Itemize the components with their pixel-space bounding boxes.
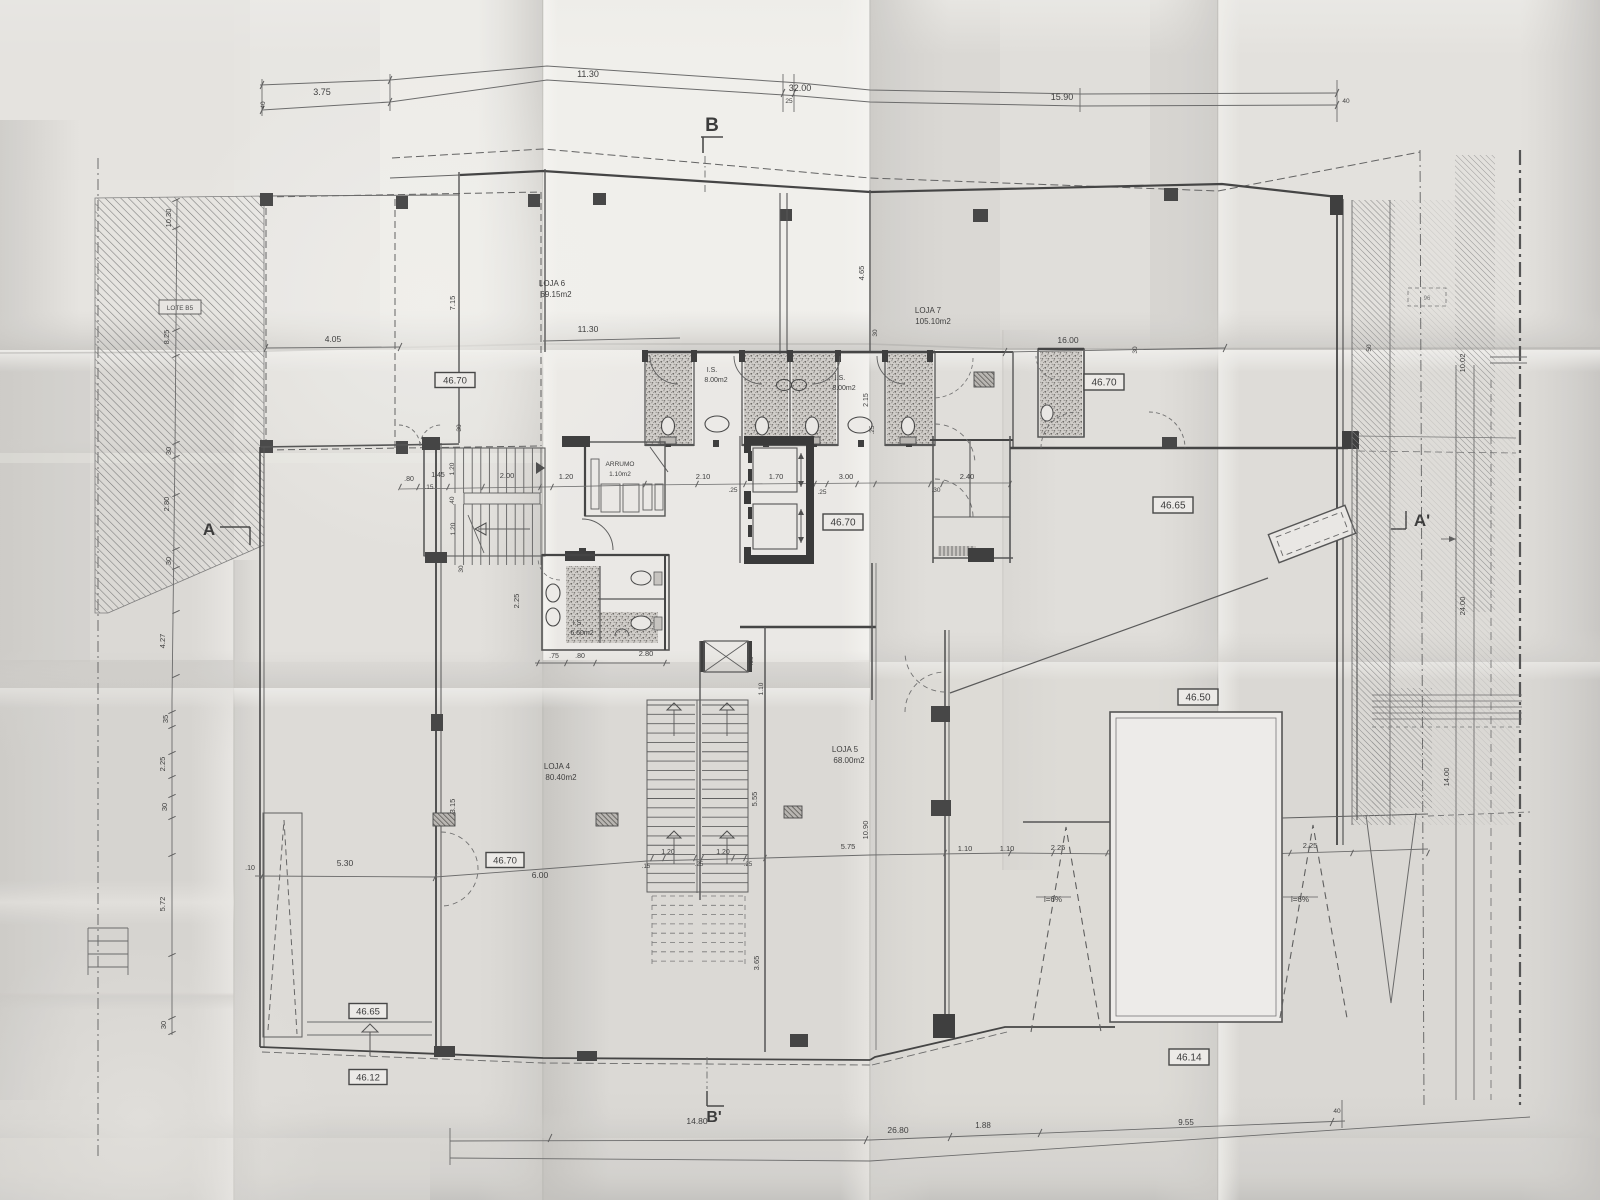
svg-text:24.00: 24.00: [1458, 597, 1467, 616]
svg-text:1.88: 1.88: [975, 1121, 991, 1130]
svg-text:16.00: 16.00: [1057, 335, 1079, 345]
svg-text:80.40m2: 80.40m2: [545, 773, 577, 782]
svg-text:4.27: 4.27: [158, 634, 167, 649]
svg-text:1.45: 1.45: [431, 472, 445, 479]
svg-text:30: 30: [456, 424, 463, 432]
svg-text:46.70: 46.70: [830, 518, 855, 529]
svg-text:A: A: [203, 520, 215, 539]
svg-text:10.02: 10.02: [1458, 354, 1467, 373]
svg-text:11.30: 11.30: [577, 69, 599, 79]
svg-text:5.72: 5.72: [158, 897, 167, 912]
svg-text:6.60m2: 6.60m2: [570, 630, 593, 637]
svg-text:40: 40: [1342, 98, 1350, 105]
svg-text:I.S.: I.S.: [707, 367, 718, 374]
svg-text:2.80: 2.80: [162, 497, 171, 512]
svg-text:LOJA 7: LOJA 7: [915, 306, 942, 315]
svg-text:1.20: 1.20: [716, 849, 730, 856]
svg-text:46.70: 46.70: [493, 855, 517, 866]
svg-text:46.65: 46.65: [1160, 501, 1185, 512]
svg-text:46.70: 46.70: [443, 375, 467, 386]
svg-text:40: 40: [260, 101, 267, 109]
svg-text:30: 30: [160, 803, 169, 811]
svg-text:.10: .10: [245, 865, 255, 872]
svg-text:2.25: 2.25: [512, 594, 521, 609]
svg-text:10.90: 10.90: [861, 821, 870, 840]
svg-text:.15: .15: [424, 484, 433, 491]
svg-text:3.75: 3.75: [313, 87, 331, 97]
svg-text:LOJA 4: LOJA 4: [544, 762, 571, 771]
svg-text:7.15: 7.15: [448, 296, 457, 311]
svg-text:46.65: 46.65: [356, 1006, 380, 1017]
svg-text:3.00: 3.00: [839, 472, 854, 481]
svg-text:15.90: 15.90: [1051, 92, 1074, 102]
svg-text:32.00: 32.00: [789, 83, 812, 93]
svg-text:.25: .25: [695, 862, 704, 868]
svg-text:40: 40: [1333, 1108, 1341, 1115]
svg-text:.80: .80: [575, 653, 585, 660]
svg-text:1.20: 1.20: [449, 462, 456, 475]
svg-text:4.05: 4.05: [325, 334, 342, 344]
svg-text:.75: .75: [549, 653, 559, 660]
svg-text:46.12: 46.12: [356, 1072, 380, 1083]
svg-text:46.70: 46.70: [1091, 378, 1116, 389]
svg-text:2.15: 2.15: [863, 393, 870, 407]
svg-text:3.15: 3.15: [448, 799, 457, 814]
svg-text:8.00m2: 8.00m2: [832, 385, 855, 392]
svg-text:46.50: 46.50: [1185, 693, 1210, 704]
svg-text:.25: .25: [869, 425, 876, 434]
svg-text:5.75: 5.75: [841, 842, 856, 851]
svg-text:1.10m2: 1.10m2: [609, 471, 631, 478]
svg-text:5.30: 5.30: [337, 858, 354, 868]
svg-text:4.65: 4.65: [857, 266, 866, 281]
svg-text:i=6%: i=6%: [1291, 895, 1309, 904]
svg-text:30: 30: [458, 565, 465, 573]
svg-text:LOTE B5: LOTE B5: [167, 305, 194, 312]
svg-text:10.30: 10.30: [164, 209, 173, 228]
svg-text:LOJA 5: LOJA 5: [832, 745, 859, 754]
svg-text:.25: .25: [744, 862, 753, 868]
svg-text:1.20: 1.20: [661, 849, 675, 856]
svg-text:.40: .40: [449, 496, 456, 505]
svg-text:2.40: 2.40: [960, 472, 975, 481]
svg-text:5.55: 5.55: [750, 792, 759, 807]
svg-text:2.25: 2.25: [1303, 841, 1318, 850]
svg-text:.80: .80: [404, 476, 414, 483]
svg-text:ARRUMO: ARRUMO: [606, 461, 635, 468]
svg-text:1.20: 1.20: [559, 472, 574, 481]
svg-text:9.55: 9.55: [1178, 1118, 1194, 1127]
svg-text:.15: .15: [642, 864, 651, 870]
svg-text:30: 30: [164, 557, 173, 565]
svg-text:.25: .25: [817, 489, 826, 496]
svg-text:B: B: [705, 115, 719, 136]
svg-text:8.00m2: 8.00m2: [704, 377, 727, 384]
svg-text:1.20: 1.20: [450, 522, 457, 535]
svg-text:1.10: 1.10: [958, 844, 973, 853]
svg-text:69.15m2: 69.15m2: [540, 290, 572, 299]
svg-text:14.00: 14.00: [1442, 768, 1451, 787]
svg-text:25: 25: [785, 98, 793, 105]
svg-text:30: 30: [872, 329, 879, 337]
svg-text:96: 96: [1424, 296, 1431, 302]
svg-text:26.80: 26.80: [887, 1125, 909, 1135]
svg-text:46.14: 46.14: [1176, 1053, 1201, 1064]
svg-text:B': B': [706, 1109, 721, 1126]
svg-text:11.30: 11.30: [578, 324, 599, 334]
svg-text:3.65: 3.65: [752, 956, 761, 971]
svg-text:.25: .25: [728, 487, 737, 494]
svg-text:I.S.: I.S.: [573, 620, 584, 627]
svg-text:2.25: 2.25: [158, 757, 167, 772]
svg-text:105.10m2: 105.10m2: [915, 317, 951, 326]
svg-text:.60: .60: [748, 656, 755, 665]
svg-text:2.10: 2.10: [696, 472, 711, 481]
svg-text:2.80: 2.80: [639, 649, 654, 658]
svg-text:14.80: 14.80: [686, 1116, 708, 1126]
svg-text:I.S.: I.S.: [835, 375, 846, 382]
svg-text:8.25: 8.25: [162, 330, 171, 345]
svg-text:2.00: 2.00: [500, 471, 515, 480]
svg-text:6.00: 6.00: [532, 870, 549, 880]
svg-text:LOJA 6: LOJA 6: [539, 279, 566, 288]
svg-text:1.70: 1.70: [769, 472, 784, 481]
svg-text:30: 30: [1132, 346, 1139, 354]
svg-text:2.25: 2.25: [1051, 843, 1066, 852]
svg-text:1.10: 1.10: [1000, 844, 1015, 853]
svg-text:1.10: 1.10: [758, 682, 765, 695]
svg-text:68.00m2: 68.00m2: [833, 756, 865, 765]
svg-text:i=6%: i=6%: [1044, 895, 1062, 904]
svg-text:50: 50: [1366, 344, 1373, 352]
svg-text:30: 30: [164, 447, 173, 455]
svg-text:30: 30: [159, 1021, 168, 1029]
svg-text:35: 35: [161, 715, 170, 723]
